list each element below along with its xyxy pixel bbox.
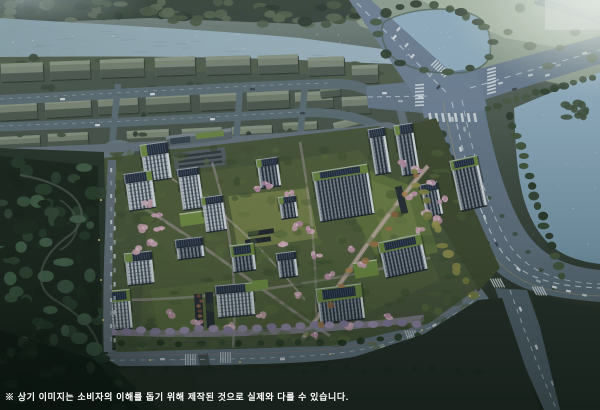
svg-text:※ 상기 이미지는 소비자의 이해를 돕기 위해 제작된 것: ※ 상기 이미지는 소비자의 이해를 돕기 위해 제작된 것으로 실제와 다를 …: [5, 391, 349, 402]
